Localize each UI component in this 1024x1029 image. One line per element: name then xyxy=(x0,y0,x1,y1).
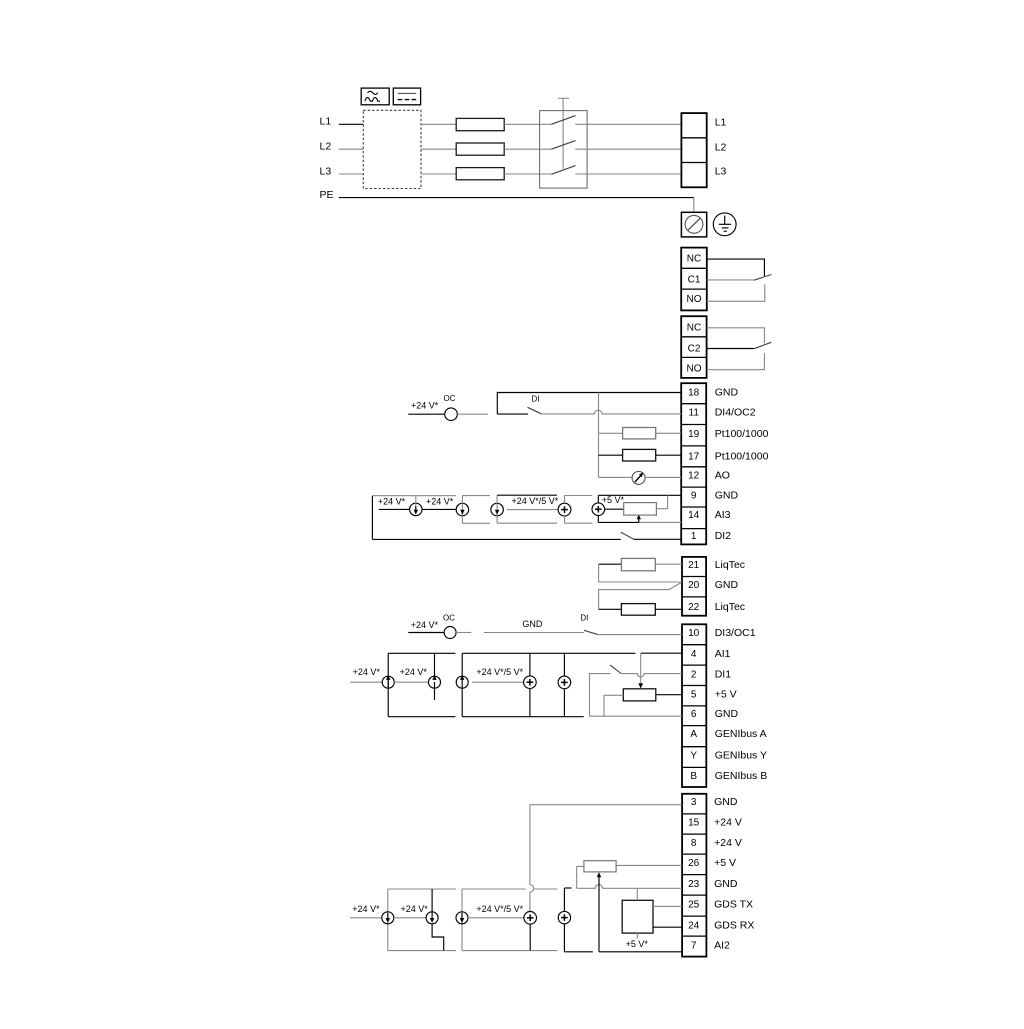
svg-text:Y: Y xyxy=(690,751,697,762)
svg-text:L2: L2 xyxy=(320,140,332,152)
svg-text:GND: GND xyxy=(715,490,739,502)
svg-text:Pt100/1000: Pt100/1000 xyxy=(715,451,769,463)
svg-text:L1: L1 xyxy=(715,117,727,129)
svg-text:L3: L3 xyxy=(715,166,727,178)
svg-text:22: 22 xyxy=(688,602,700,613)
svg-text:L2: L2 xyxy=(715,141,727,153)
svg-text:GENIbus Y: GENIbus Y xyxy=(715,750,767,762)
svg-text:+24 V*/5 V*: +24 V*/5 V* xyxy=(476,667,523,677)
svg-text:1: 1 xyxy=(691,531,697,542)
svg-text:17: 17 xyxy=(688,452,700,463)
svg-text:14: 14 xyxy=(688,510,700,521)
svg-text:+24 V*: +24 V* xyxy=(411,401,439,411)
svg-text:7: 7 xyxy=(691,940,697,951)
svg-text:GND: GND xyxy=(714,796,738,808)
svg-text:PE: PE xyxy=(320,189,334,201)
svg-text:+24 V*: +24 V* xyxy=(378,496,406,506)
svg-text:+24 V*: +24 V* xyxy=(426,496,454,506)
svg-text:DI: DI xyxy=(580,614,588,623)
svg-text:10: 10 xyxy=(688,628,700,639)
svg-text:GND: GND xyxy=(714,878,738,890)
svg-text:19: 19 xyxy=(688,429,700,440)
svg-text:+24 V*: +24 V* xyxy=(353,667,381,677)
svg-text:+5 V: +5 V xyxy=(714,857,736,869)
svg-text:+24 V: +24 V xyxy=(714,817,742,829)
svg-text:26: 26 xyxy=(688,858,700,869)
svg-text:A: A xyxy=(690,729,697,740)
svg-text:GND: GND xyxy=(522,619,543,629)
svg-text:AI2: AI2 xyxy=(714,939,730,951)
svg-text:+5 V*: +5 V* xyxy=(602,495,625,505)
svg-text:NC: NC xyxy=(687,323,701,334)
svg-text:C1: C1 xyxy=(688,274,701,285)
svg-text:+24 V*: +24 V* xyxy=(400,667,428,677)
svg-text:25: 25 xyxy=(688,899,700,910)
svg-text:LiqTec: LiqTec xyxy=(715,601,745,613)
svg-text:+24 V*: +24 V* xyxy=(411,620,439,630)
svg-text:+24 V*/5 V*: +24 V*/5 V* xyxy=(476,904,523,914)
svg-text:LiqTec: LiqTec xyxy=(715,559,745,571)
svg-text:NC: NC xyxy=(687,254,701,265)
svg-text:GENIbus B: GENIbus B xyxy=(715,770,768,782)
svg-text:+5 V: +5 V xyxy=(715,689,737,701)
svg-text:+24 V*: +24 V* xyxy=(352,904,380,914)
svg-text:GDS RX: GDS RX xyxy=(714,920,754,932)
svg-text:DI2: DI2 xyxy=(715,530,732,542)
svg-text:20: 20 xyxy=(688,580,700,591)
svg-text:15: 15 xyxy=(688,818,700,829)
svg-text:OC: OC xyxy=(444,394,456,403)
svg-text:DI4/OC2: DI4/OC2 xyxy=(715,407,756,419)
svg-text:NO: NO xyxy=(687,294,702,305)
svg-text:B: B xyxy=(690,771,697,782)
svg-text:21: 21 xyxy=(688,560,700,571)
svg-text:GND: GND xyxy=(715,708,739,720)
svg-text:+24 V: +24 V xyxy=(714,837,742,849)
svg-text:DI: DI xyxy=(532,395,540,404)
svg-text:GDS TX: GDS TX xyxy=(714,898,753,910)
svg-text:12: 12 xyxy=(688,471,700,482)
svg-text:OC: OC xyxy=(443,614,455,623)
svg-text:L1: L1 xyxy=(320,116,332,128)
svg-text:8: 8 xyxy=(691,838,697,849)
svg-text:GND: GND xyxy=(715,387,739,399)
svg-text:3: 3 xyxy=(691,797,697,808)
svg-text:+5 V*: +5 V* xyxy=(626,939,649,949)
svg-text:24: 24 xyxy=(688,921,700,932)
svg-text:Pt100/1000: Pt100/1000 xyxy=(715,428,769,440)
svg-text:L3: L3 xyxy=(320,165,332,177)
svg-text:+24 V*/5 V*: +24 V*/5 V* xyxy=(512,496,559,506)
svg-text:DI3/OC1: DI3/OC1 xyxy=(715,627,756,639)
svg-text:AI1: AI1 xyxy=(715,648,731,660)
svg-text:DI1: DI1 xyxy=(715,669,732,681)
svg-text:AO: AO xyxy=(715,470,730,482)
svg-text:2: 2 xyxy=(691,670,697,681)
svg-text:GND: GND xyxy=(715,579,739,591)
svg-text:AI3: AI3 xyxy=(715,509,731,521)
svg-text:GENIbus A: GENIbus A xyxy=(715,728,767,740)
svg-text:4: 4 xyxy=(691,649,697,660)
svg-text:C2: C2 xyxy=(688,344,701,355)
svg-text:9: 9 xyxy=(691,491,697,502)
svg-text:NO: NO xyxy=(687,364,702,375)
svg-text:11: 11 xyxy=(689,408,700,419)
svg-text:23: 23 xyxy=(688,879,700,890)
svg-text:18: 18 xyxy=(688,388,700,399)
svg-text:5: 5 xyxy=(691,690,697,701)
svg-text:+24 V*: +24 V* xyxy=(401,904,429,914)
svg-text:6: 6 xyxy=(691,709,697,720)
